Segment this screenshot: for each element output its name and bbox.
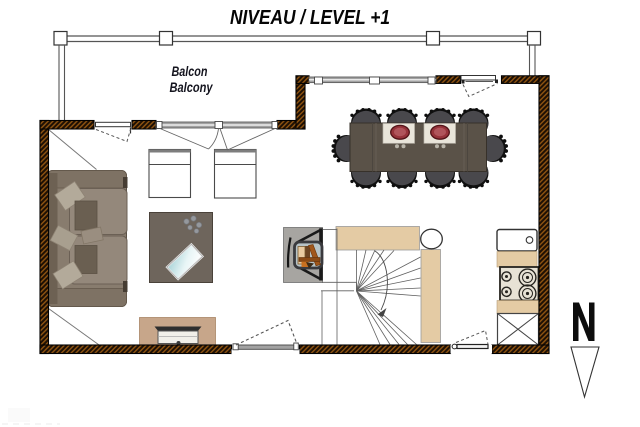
svg-text:Balcony: Balcony — [170, 80, 214, 95]
svg-text:Balcon: Balcon — [172, 64, 208, 79]
svg-text:NIVEAU / LEVEL +1: NIVEAU / LEVEL +1 — [230, 7, 390, 29]
